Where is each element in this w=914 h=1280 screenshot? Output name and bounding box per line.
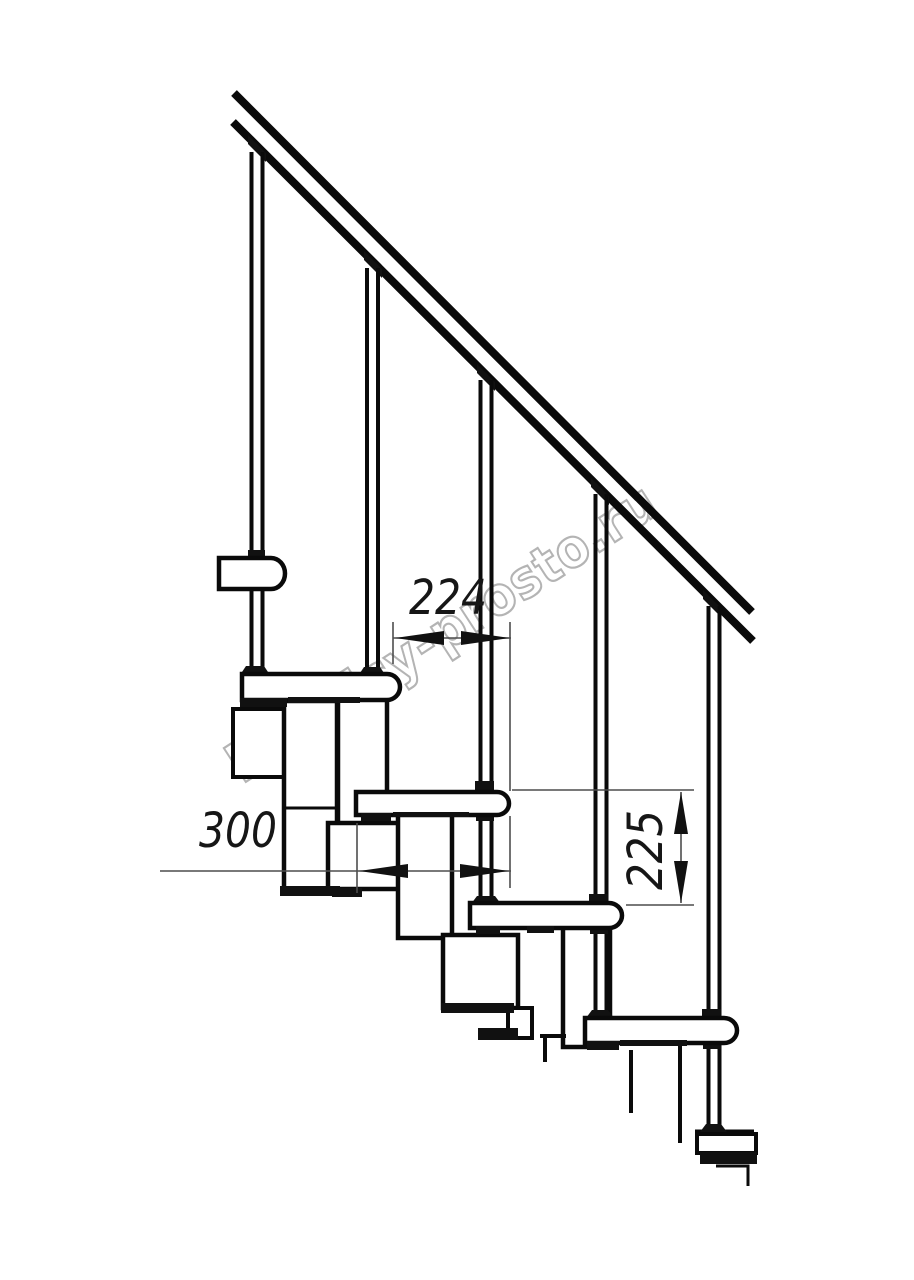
step1-bracket [240,698,287,707]
module-under-step3 [443,935,518,1008]
step2-bracket [361,813,391,821]
floor-mount-box [233,709,287,777]
step-4 [585,1018,737,1043]
step3-bracket-2 [527,926,554,933]
base-bracket [700,1152,757,1164]
base-foot-line [716,1166,748,1186]
step-1 [242,674,400,700]
staircase-drawing: lestnicy-prosto.ru [0,0,914,1280]
module1-bottom-cap [280,886,340,896]
dim225-arrow-up [674,792,688,834]
baluster-2 [358,251,386,676]
dim224-label: 224 [409,570,487,626]
step1-shadow-strip [288,697,360,703]
baluster-5 [700,590,727,1132]
technical-drawing-page: lestnicy-prosto.ru [0,0,914,1280]
dim225-label: 225 [618,810,674,890]
baluster-1 [240,135,270,675]
module3-bottom-cap [441,1003,514,1013]
dim225-arrow-down [674,861,688,903]
baluster-5-foot [700,1124,727,1132]
dim300-label: 300 [199,803,277,859]
module-under-step2 [328,823,404,889]
step-2 [356,792,509,815]
step4-bracket [587,1041,619,1050]
dimension-225: 225 [512,790,694,905]
base-block [697,1134,756,1153]
upper-landing-bracket [219,558,285,589]
module3-lower-bracket [478,1028,518,1040]
step2-shadow-strip [393,812,469,817]
step4-shadow-strip [620,1040,687,1046]
step3-bracket [476,926,500,934]
dim300-arrow-right [460,864,509,878]
step-3 [470,903,622,928]
baluster-3-joint-upper [475,781,494,791]
bottom-base [695,1131,757,1186]
